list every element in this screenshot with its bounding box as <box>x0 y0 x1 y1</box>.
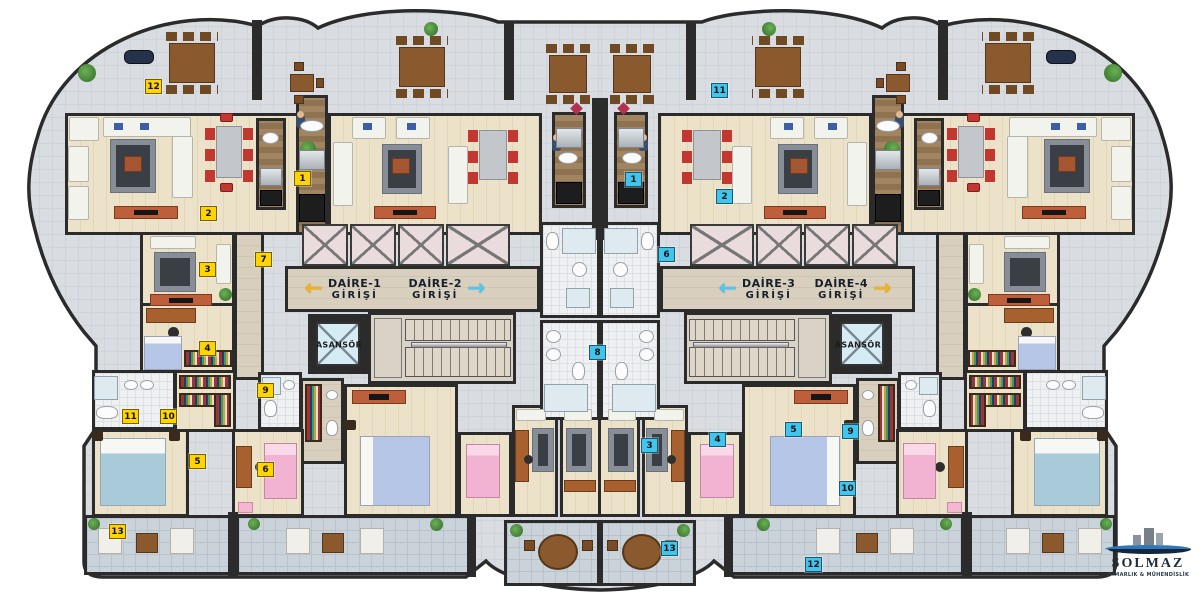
logo-buildings-graphic <box>1133 528 1163 545</box>
entrance-direction-arrow-icon: → <box>467 283 485 295</box>
room-badge-blue-8: 8 <box>589 345 606 360</box>
room-badge-yellow-13: 13 <box>109 524 126 539</box>
room-badge-yellow-3: 3 <box>199 262 216 277</box>
room-badge-blue-2: 2 <box>716 189 733 204</box>
room-badge-blue-11: 11 <box>711 83 728 98</box>
floor-plan: ←DAİRE-1GİRİŞİDAİRE-2GİRİŞİ→←DAİRE-3GİRİ… <box>0 0 1200 600</box>
entrance-word-label: GİRİŞİ <box>412 290 458 301</box>
entrance-sign-text: DAİRE-4GİRİŞİ <box>815 277 868 301</box>
room-badge-blue-1: 1 <box>625 172 642 187</box>
logo-company-subtitle: MİMARLIK & MÜHENDİSLİK <box>1102 572 1194 578</box>
entrance-sign-dai̇re-3: ←DAİRE-3GİRİŞİ <box>719 277 796 301</box>
entrance-sign-dai̇re-2: DAİRE-2GİRİŞİ→ <box>409 277 486 301</box>
room-badge-yellow-5: 5 <box>189 454 206 469</box>
room-badge-blue-10: 10 <box>839 481 856 496</box>
room-badge-blue-4: 4 <box>709 432 726 447</box>
entrance-sign-dai̇re-1: ←DAİRE-1GİRİŞİ <box>305 277 382 301</box>
room-badge-yellow-6: 6 <box>257 462 274 477</box>
annotation-overlay: ←DAİRE-1GİRİŞİDAİRE-2GİRİŞİ→←DAİRE-3GİRİ… <box>0 0 1200 600</box>
room-badge-blue-5: 5 <box>785 422 802 437</box>
company-logo: SOLMAZ MİMARLIK & MÜHENDİSLİK <box>1102 528 1194 578</box>
entrance-direction-arrow-icon: ← <box>305 283 323 295</box>
apartment-name-label: DAİRE-1 <box>328 277 381 290</box>
room-badge-blue-3: 3 <box>641 438 658 453</box>
room-badge-yellow-1: 1 <box>294 171 311 186</box>
entrance-sign-text: DAİRE-1GİRİŞİ <box>328 277 381 301</box>
entrance-word-label: GİRİŞİ <box>332 290 378 301</box>
entrance-word-label: GİRİŞİ <box>746 290 792 301</box>
entrance-direction-arrow-icon: ← <box>719 283 737 295</box>
room-badge-blue-13: 13 <box>661 541 678 556</box>
entrance-sign-text: DAİRE-2GİRİŞİ <box>409 277 462 301</box>
room-badge-yellow-2: 2 <box>200 206 217 221</box>
room-badge-blue-6: 6 <box>658 247 675 262</box>
entrance-sign-text: DAİRE-3GİRİŞİ <box>742 277 795 301</box>
entrance-word-label: GİRİŞİ <box>818 290 864 301</box>
elevator-label: ASANSÖR <box>316 341 362 350</box>
apartment-name-label: DAİRE-4 <box>815 277 868 290</box>
room-badge-yellow-11: 11 <box>122 409 139 424</box>
elevator-label: ASANSÖR <box>835 341 881 350</box>
apartment-name-label: DAİRE-3 <box>742 277 795 290</box>
room-badge-yellow-9: 9 <box>257 383 274 398</box>
room-badge-yellow-12: 12 <box>145 79 162 94</box>
apartment-name-label: DAİRE-2 <box>409 277 462 290</box>
room-badge-blue-9: 9 <box>842 424 859 439</box>
room-badge-yellow-4: 4 <box>199 341 216 356</box>
logo-company-name: SOLMAZ <box>1102 556 1194 572</box>
room-badge-yellow-7: 7 <box>255 252 272 267</box>
entrance-direction-arrow-icon: → <box>873 283 891 295</box>
entrance-sign-dai̇re-4: DAİRE-4GİRİŞİ→ <box>815 277 892 301</box>
room-badge-yellow-10: 10 <box>160 409 177 424</box>
logo-wave-graphic <box>1105 545 1191 555</box>
room-badge-blue-12: 12 <box>805 557 822 572</box>
